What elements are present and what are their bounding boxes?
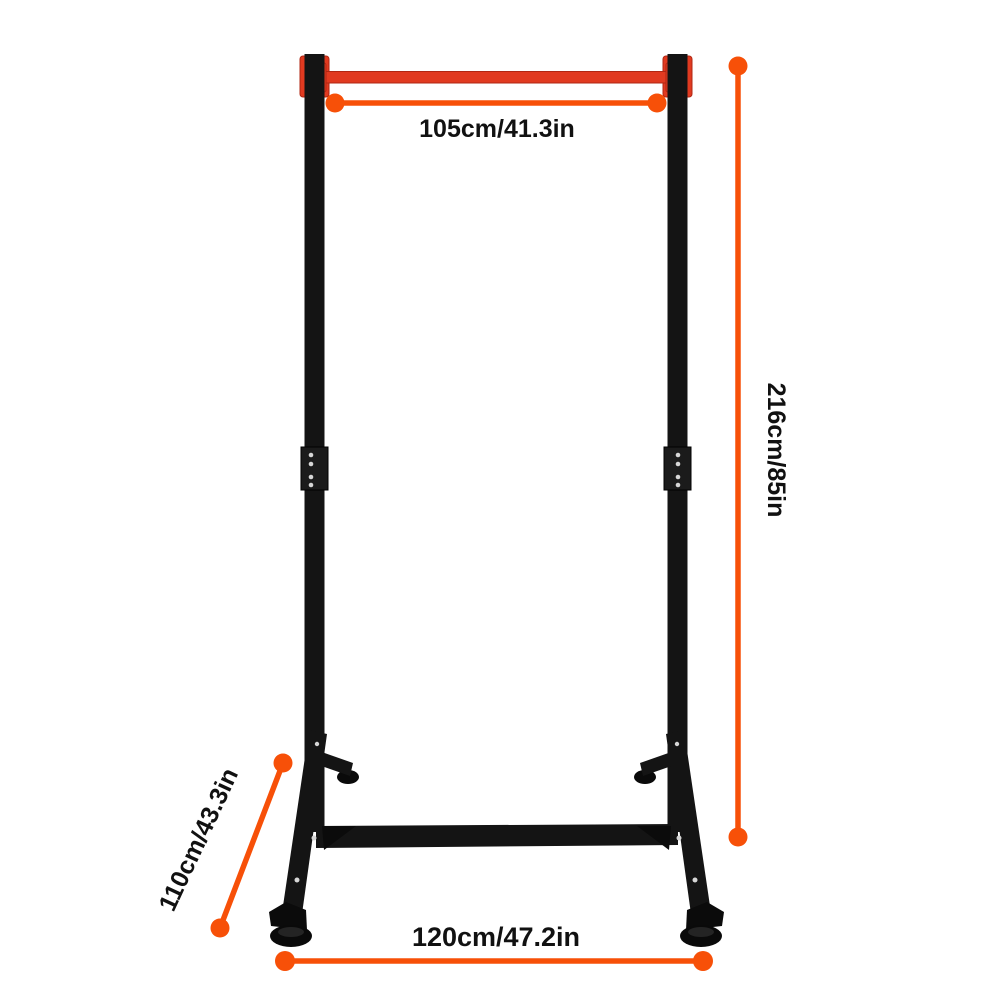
dimension-endpoint-dot (274, 754, 293, 773)
dimension-base-width: 120cm/47.2in (275, 922, 713, 971)
bolt-icon (677, 836, 682, 841)
dimension-depth: 110cm/43.3in (153, 754, 292, 938)
bolt-icon (676, 475, 681, 480)
right-foot-pad-highlight (688, 927, 714, 937)
bolt-icon (676, 453, 681, 458)
bolt-icon (312, 836, 317, 841)
dimension-endpoint-dot (693, 951, 713, 971)
bolt-icon (309, 483, 314, 488)
dimension-endpoint-dot (729, 828, 748, 847)
bolt-icon (309, 462, 314, 467)
base-assembly (269, 730, 724, 947)
pullup-bar-stand-illustration: 105cm/41.3in 216cm/85in 110cm/43.3in 120… (0, 0, 1000, 1000)
dimension-label-height: 216cm/85in (762, 383, 790, 518)
bolt-icon (693, 878, 698, 883)
dimension-label-depth: 110cm/43.3in (153, 764, 244, 916)
right-upright-post (668, 54, 688, 832)
bolt-icon (675, 742, 679, 746)
pullup-bar (314, 63, 678, 92)
bolt-icon (676, 483, 681, 488)
bolt-icon (295, 878, 300, 883)
bolt-icon (309, 453, 314, 458)
left-upright (301, 54, 328, 832)
bolt-icon (315, 742, 319, 746)
left-upright-post (305, 54, 325, 832)
base-cross-brace (316, 824, 678, 848)
dimension-endpoint-dot (326, 94, 345, 113)
dimension-endpoint-dot (275, 951, 295, 971)
left-height-adjust-sleeve (301, 447, 328, 490)
dimension-height: 216cm/85in (729, 57, 791, 847)
dimension-top-width: 105cm/41.3in (326, 94, 667, 144)
dimension-endpoint-dot (648, 94, 667, 113)
dimension-label-base-width: 120cm/47.2in (412, 922, 580, 952)
pullup-stand-frame (269, 54, 724, 947)
left-foot-pad-highlight (278, 927, 304, 937)
dimension-endpoint-dot (729, 57, 748, 76)
dimension-endpoint-dot (211, 919, 230, 938)
bolt-icon (309, 475, 314, 480)
pullup-bar-tube (314, 72, 678, 84)
product-dimension-diagram: 105cm/41.3in 216cm/85in 110cm/43.3in 120… (0, 0, 1000, 1000)
bolt-icon (676, 462, 681, 467)
dimension-label-top-width: 105cm/41.3in (419, 115, 575, 143)
right-upright (664, 54, 691, 832)
